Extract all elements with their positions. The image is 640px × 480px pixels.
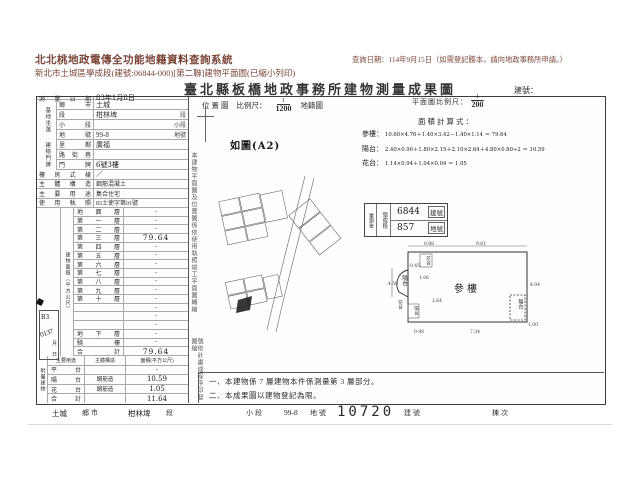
floor-area-block: 建物面積（平方公尺） 地面層· 第一層· 第二層· 第三層79.64 第四層· …: [37, 208, 188, 356]
flower-bed-label: 花台: [426, 255, 431, 267]
new-land-no: 857: [397, 223, 414, 233]
land-row: 小段 小段: [57, 120, 188, 130]
building-info-table: 測量日期 83年1月8日 基地坐落 鄉市 土城 段 柑林埤段 小段 小段: [37, 97, 189, 403]
floor-total-row: 合計79.64: [74, 347, 188, 356]
receipt-day-label: 日: [52, 351, 57, 358]
door-plate-group: 建物門牌 里鄰 廣福 路街巷 門牌 6號3樓: [37, 140, 188, 170]
floor-area-group-label: 建物面積（平方公尺）: [65, 252, 70, 312]
plan-scale: 平面圖比例尺： 1200: [412, 94, 487, 109]
notes-line-1: 一、本建物係 7 層建物本件係測量第 3 層部分。: [209, 376, 604, 387]
plan-scale-label: 平面圖比例尺：: [412, 97, 468, 107]
building-no-label: 建號：: [514, 85, 538, 96]
usage-row: 主要用途 集合住宅: [37, 189, 188, 199]
dimension-label: 2.64: [432, 298, 442, 304]
dimension-label: 4.50: [388, 281, 398, 287]
bottom-building-no: 10720: [337, 404, 394, 420]
notes-line-2: 二、本成果圖以建物登記為限。: [209, 390, 604, 401]
resurvey-label: 重測後: [368, 213, 373, 228]
dimension-label: 0.88: [424, 241, 434, 247]
annex-row: 陽台 鋼筋造 10.59: [48, 375, 188, 385]
dimension-label: 1.06: [419, 275, 429, 281]
land-row: 地號 99-8地號: [57, 130, 188, 140]
structure-row: 主體構造 鋼筋混凝土: [37, 180, 188, 190]
north-cross-bar: [197, 116, 214, 117]
area-calc-line: 參樓： 10.60×4.76＋1.40×3.42－1.40×1.14 ＝ 79.…: [362, 129, 507, 139]
style-row: 樓房式樣 ／: [37, 170, 188, 180]
annex-block: 附屬建物 主要用途 主體構造 面積(平方公尺) 平台 · 陽台 鋼筋造 10.5…: [37, 356, 188, 403]
receipt-number: 0137: [39, 328, 54, 339]
location-map-header: 位置圖 比例尺： 11200 地籍圖: [202, 98, 323, 113]
subject-parcel-mark: [236, 296, 252, 313]
receipt-stamp-box: B3 0137 月 日: [39, 310, 59, 360]
resurvey-section: 學成段: [381, 212, 387, 229]
plate-row: 路街巷: [57, 150, 188, 160]
bottom-block-label: 棟次: [492, 408, 510, 418]
balcony-label: 陽台: [414, 305, 419, 317]
plate-group-label: 建物門牌: [44, 142, 50, 168]
land-group-label: 基地坐落: [44, 107, 50, 133]
dimension-label: 0.98: [414, 329, 424, 335]
query-date: 查詢日期：114年9月15日（如需登記謄本，請向地政事務所申請。）: [352, 55, 567, 65]
annex-group-label: 附屬建物: [40, 368, 45, 392]
floorplan-main-label: 參樓: [454, 282, 480, 295]
map-scale-label: 比例尺：: [237, 100, 267, 111]
annex-row: 平台 ·: [48, 366, 188, 376]
area-calc-line: 花台： 1.14×0.94＋1.04×0.04 ＝ 1.05: [362, 158, 467, 168]
notes-box: 一、本建物係 7 層建物本件係測量第 3 層部分。 二、本成果圖以建物登記為限。: [198, 372, 604, 403]
location-map-label: 位置圖: [202, 100, 231, 111]
balcony-label: 陽台: [518, 298, 524, 310]
land-row: 鄉市 土城: [57, 100, 188, 110]
area-calc-line: 陽台： 2.40×0.90＋1.80×2.15＋2.10×2.64＋4.80×0…: [362, 144, 545, 154]
bottom-building-no-label: 建號: [404, 408, 422, 418]
balcony-label: 陽台: [401, 274, 408, 288]
resurvey-box: 重測後 學成段 6844 建號 857 地號: [364, 203, 448, 237]
floorplan-sketch: 參樓 花台 陽台 花台 陽台 陽台 0.88 9.61 4.04 1.00 0.…: [388, 240, 573, 360]
map-scale-fraction: 11200: [276, 98, 292, 113]
vertical-note-1: 本建物平面圖及位置圖係依使用執照竣工平面圖轉繪: [190, 152, 196, 332]
scan-edge-line: [28, 424, 612, 425]
map-annotation: 如圖(A2): [230, 137, 280, 152]
receipt-code: B3: [41, 314, 49, 321]
location-map-sketch: [208, 172, 348, 337]
system-title: 北北桃地政電傳全功能地籍資料查詢系統: [35, 52, 233, 67]
bottom-land-no-label: 地號: [310, 408, 328, 418]
annex-header-row: 主要用途 主體構造 面積(平方公尺): [48, 356, 188, 366]
floor-row: 第十層·: [74, 295, 188, 304]
bottom-section: 柑林埤: [128, 408, 151, 419]
annex-row: 花台 鋼筋造 1.05: [48, 385, 188, 395]
annex-total-row: 合計 11.64: [48, 394, 188, 403]
plate-row: 里鄰 廣福: [57, 140, 188, 150]
north-cross-mark: [205, 106, 206, 142]
bottom-land-no: 99-8: [284, 408, 298, 417]
area-calc-title: 面積計算式：: [418, 116, 475, 127]
flower-bed-label: 花台: [398, 299, 403, 311]
land-row: 段 柑林埤段: [57, 110, 188, 120]
land-location-group: 基地坐落 鄉市 土城 段 柑林埤段 小段 小段 地號 99-8地號: [37, 100, 188, 140]
dimension-label: 9.61: [476, 241, 486, 247]
dimension-label: 1.00: [528, 322, 538, 328]
bottom-subsection-label: 小段: [246, 408, 264, 418]
floor-row: ·: [74, 312, 188, 321]
new-building-no: 6844: [397, 207, 420, 217]
plan-scale-fraction: 1200: [471, 94, 484, 109]
dimension-label: 7.34: [470, 329, 480, 335]
map-scale-ref: 地籍圖: [301, 100, 324, 111]
bottom-city: 土城: [52, 408, 67, 419]
dimension-label: 4.04: [530, 282, 540, 288]
report-subtitle: 新北市土城區學成段(建號:06844-000)[第二聯]建物平面圖(已縮小列印): [35, 67, 295, 79]
dimension-label: 0.45: [410, 263, 420, 269]
floor-row: ·: [74, 304, 188, 313]
bottom-city-label: 鄉市: [82, 408, 100, 418]
bottom-section-label: 段: [166, 408, 175, 418]
receipt-month-label: 月: [52, 340, 57, 347]
land-registry-report-page: 北北桃地政電傳全功能地籍資料查詢系統 查詢日期：114年9月15日（如需登記謄本…: [0, 0, 640, 480]
